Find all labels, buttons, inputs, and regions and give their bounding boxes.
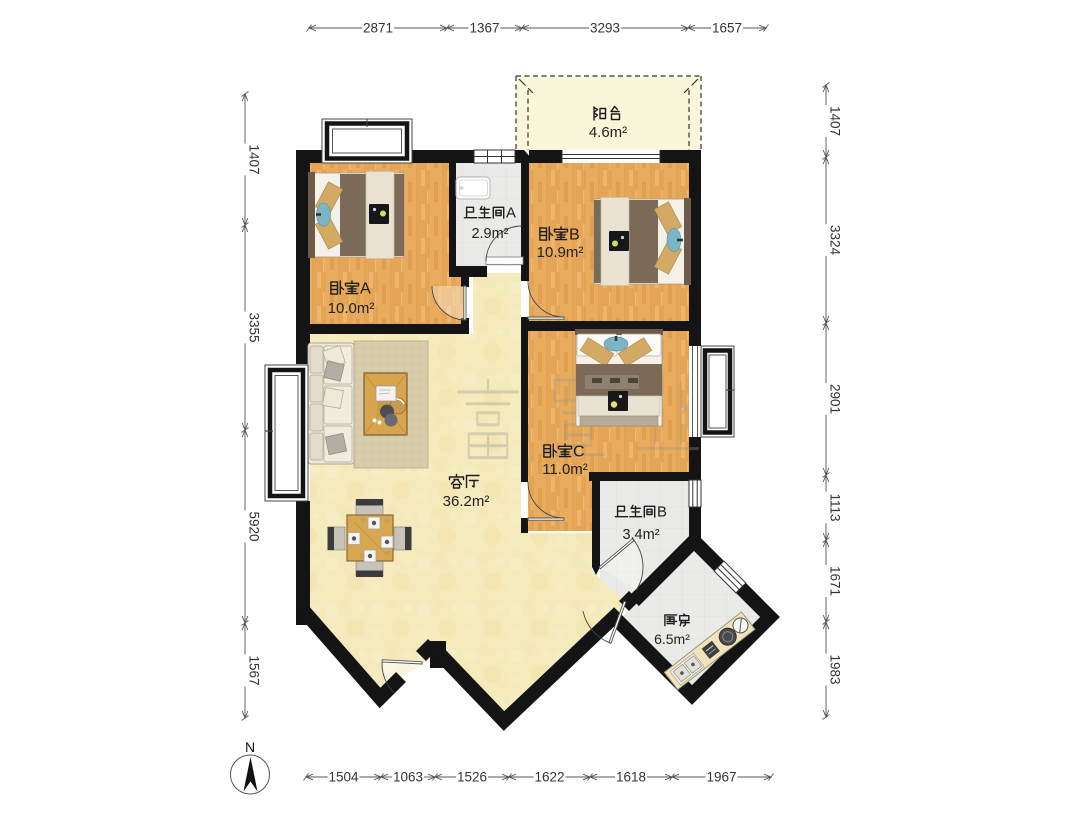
svg-text:10.0m²: 10.0m² [328,300,375,317]
svg-text:3324: 3324 [828,225,843,256]
svg-text:5920: 5920 [247,511,262,541]
svg-text:36.2m²: 36.2m² [443,493,490,510]
svg-text:2.9m²: 2.9m² [471,226,508,242]
svg-text:1657: 1657 [712,21,742,36]
svg-text:3355: 3355 [247,312,262,342]
svg-text:3293: 3293 [590,21,620,36]
svg-text:1622: 1622 [534,770,564,785]
svg-text:3.4m²: 3.4m² [622,527,659,543]
svg-text:A: A [360,279,371,297]
svg-text:1407: 1407 [247,144,262,174]
svg-text:1983: 1983 [828,654,843,684]
svg-text:1367: 1367 [469,21,499,36]
svg-text:C: C [573,442,585,460]
svg-text:1504: 1504 [328,770,359,785]
svg-text:A: A [506,205,516,221]
svg-text:1063: 1063 [393,770,423,785]
svg-text:B: B [569,225,580,243]
svg-text:1113: 1113 [828,493,843,521]
svg-text:4.6m²: 4.6m² [589,124,627,141]
svg-text:2871: 2871 [363,21,393,36]
svg-text:N: N [245,739,255,755]
svg-text:2901: 2901 [828,384,843,414]
svg-text:11.0m²: 11.0m² [542,461,588,478]
svg-text:6.5m²: 6.5m² [654,631,690,647]
svg-text:1567: 1567 [247,655,262,685]
svg-text:B: B [657,504,667,520]
svg-text:1967: 1967 [706,770,736,785]
svg-text:1618: 1618 [616,770,646,785]
svg-text:1407: 1407 [828,106,843,136]
svg-text:1671: 1671 [828,566,843,596]
svg-text:10.9m²: 10.9m² [537,244,584,261]
svg-text:1526: 1526 [457,770,487,785]
